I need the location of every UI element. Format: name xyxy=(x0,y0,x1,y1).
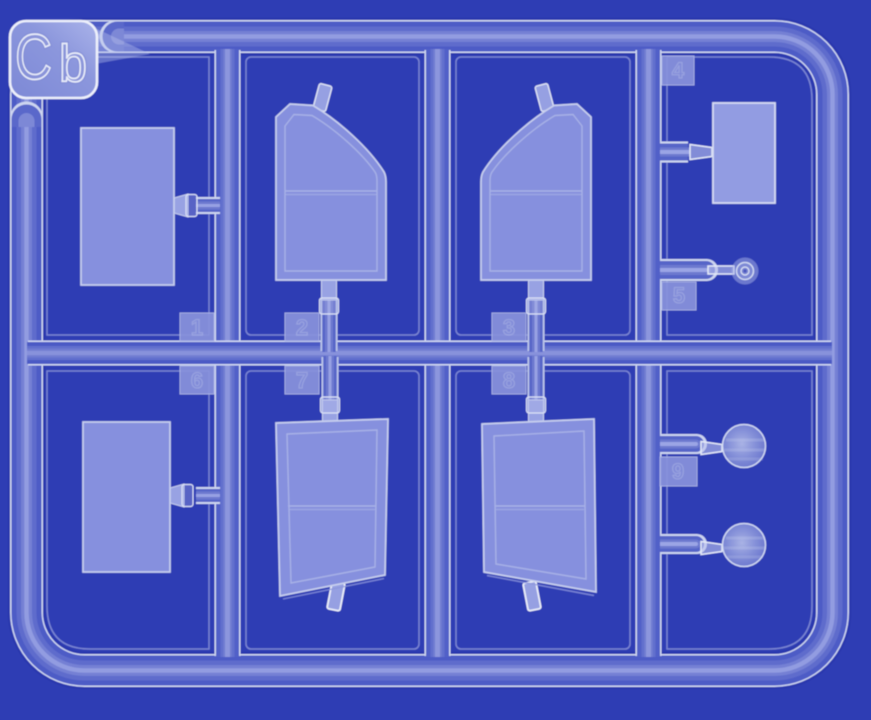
svg-text:7: 7 xyxy=(296,368,308,393)
svg-text:1: 1 xyxy=(191,315,203,340)
svg-text:C: C xyxy=(15,21,52,93)
svg-text:2: 2 xyxy=(296,315,308,340)
svg-text:4: 4 xyxy=(672,58,685,83)
svg-text:8: 8 xyxy=(503,368,515,393)
svg-text:3: 3 xyxy=(503,315,515,340)
svg-text:b: b xyxy=(59,35,87,93)
svg-text:6: 6 xyxy=(191,368,203,393)
svg-text:5: 5 xyxy=(673,283,685,308)
svg-text:9: 9 xyxy=(672,459,684,484)
